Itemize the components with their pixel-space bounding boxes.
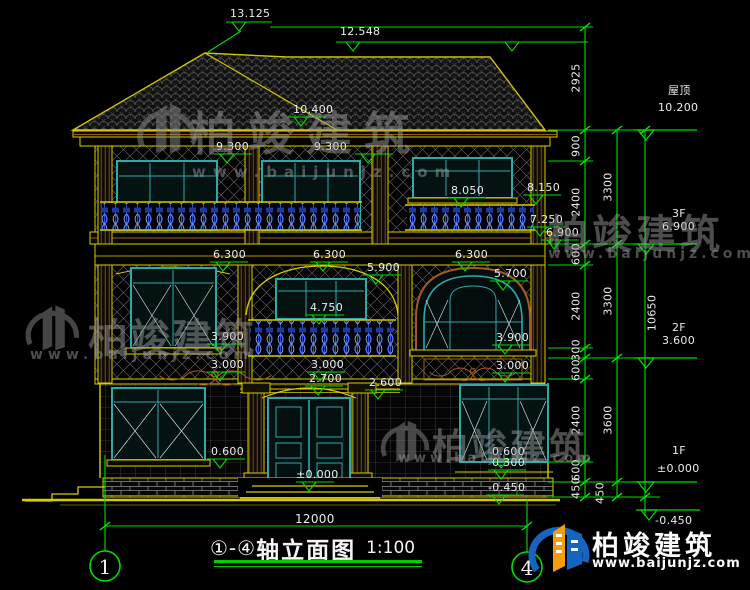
- storey-label-roof: 屋顶: [668, 85, 691, 96]
- level-label-6300-a: 6.300: [213, 249, 246, 260]
- level-label-3900-b: 3.900: [496, 332, 529, 343]
- elevation-linework: [0, 0, 750, 590]
- dim-2400-b: 2400: [571, 291, 582, 320]
- dim-3300-a: 3300: [603, 172, 614, 201]
- dim-600-b: 600: [571, 359, 582, 381]
- dim-10650-total: 10650: [647, 295, 658, 332]
- level-label-0300: 0.300: [492, 457, 525, 468]
- title-underline-thin: [214, 566, 422, 567]
- level-label-9300-a: 9.300: [216, 141, 249, 152]
- overall-width-dim: 12000: [295, 513, 335, 525]
- level-label-5900: 5.900: [367, 262, 400, 273]
- dim-900: 900: [571, 135, 582, 157]
- level-label-ridge-side: 12.548: [340, 26, 380, 37]
- dim-2925: 2925: [571, 63, 582, 92]
- level-label-eave: 10.400: [293, 104, 333, 115]
- level-label-6900-edge: 6.900: [546, 227, 579, 238]
- dim-600-a: 600: [571, 243, 582, 265]
- storey-elevation-1f: ±0.000: [657, 463, 700, 474]
- brand-url: www.baijunjz.com: [592, 556, 741, 571]
- level-label-ridge-main: 13.125: [230, 8, 270, 19]
- storey-label-2f: 2F: [672, 322, 686, 333]
- third-floor-balustrade: [100, 202, 535, 230]
- level-label-3000-a: 3.000: [211, 359, 244, 370]
- level-label-3000-b: 3.000: [311, 359, 344, 370]
- level-label-8050: 8.050: [451, 185, 484, 196]
- base-and-ground: [22, 478, 560, 505]
- level-label-9300-b: 9.300: [314, 141, 347, 152]
- dim-3600: 3600: [603, 405, 614, 434]
- storey-elevation-2f: 3.600: [662, 335, 695, 346]
- level-label-6300-c: 6.300: [455, 249, 488, 260]
- level-label-8150: 8.150: [527, 182, 560, 193]
- dim-450-a: 450: [571, 477, 582, 499]
- level-label-2600: 2.600: [369, 377, 402, 388]
- level-label-6300-b: 6.300: [313, 249, 346, 260]
- level-label-5700: 5.700: [494, 268, 527, 279]
- drawing-title: ①-④轴立面图1:100: [210, 531, 415, 565]
- brand-logo: [532, 524, 586, 572]
- level-label-door-zero: ±0.000: [296, 469, 339, 480]
- level-label-7250: 7.250: [530, 214, 563, 225]
- storey-elevation-roof: 10.200: [658, 102, 698, 113]
- axis-bubble-4: 4: [521, 558, 534, 578]
- dim-300: 300: [571, 339, 582, 361]
- dim-450-b: 450: [595, 482, 606, 504]
- storey-label-1f: 1F: [672, 445, 686, 456]
- dim-3300-b: 3300: [603, 286, 614, 315]
- storey-label-3f: 3F: [672, 208, 686, 219]
- level-label-3900-a: 3.900: [211, 331, 244, 342]
- level-label-3000-c: 3.000: [496, 360, 529, 371]
- dim-2400-c: 2400: [571, 405, 582, 434]
- cad-elevation-drawing: 13.125 12.548 10.400 9.300 9.300 8.050 8…: [0, 0, 750, 590]
- storey-elevation-3f: 6.900: [662, 221, 695, 232]
- title-axis-range: ①-④: [210, 536, 256, 560]
- level-label-0600-left: 0.600: [211, 446, 244, 457]
- title-underline-thick: [214, 560, 422, 563]
- level-label-4750: 4.750: [310, 302, 343, 313]
- level-label-m0450-a: -0.450: [488, 482, 525, 493]
- axis-bubble-1: 1: [99, 557, 112, 577]
- roof: [73, 53, 557, 146]
- level-label-2700: 2.700: [309, 373, 342, 384]
- dim-2400-a: 2400: [571, 187, 582, 216]
- title-scale: 1:100: [366, 538, 415, 558]
